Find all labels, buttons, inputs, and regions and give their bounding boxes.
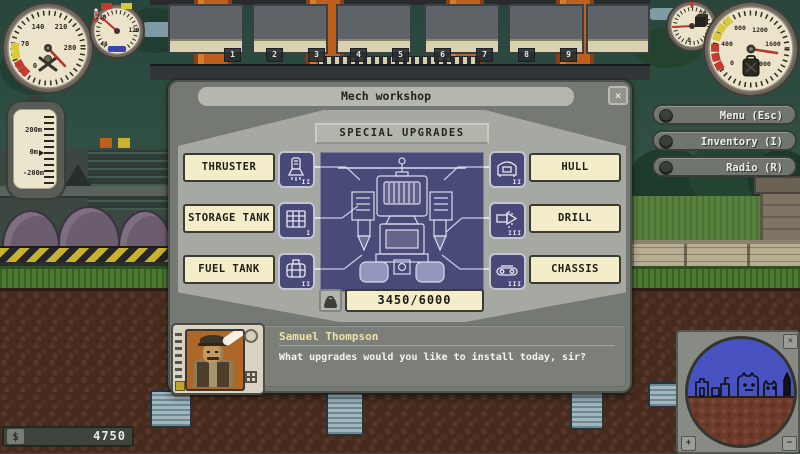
npc-name: Samuel Thompson <box>279 330 378 343</box>
close-button[interactable]: ✕ <box>608 86 628 105</box>
bay-number: 4 <box>350 48 367 62</box>
upgrade-level: III <box>508 281 522 288</box>
npc-mustache <box>207 357 219 360</box>
altimeter-tick: -200m <box>23 169 44 177</box>
fuel-gauge: 0 400 800 1200 1600 2000 <box>702 0 800 98</box>
upgrade-level: I <box>306 230 311 237</box>
tv-warning-sticker <box>175 381 185 391</box>
gauge-tick: 70 <box>21 40 29 48</box>
drill-button[interactable]: DRILL <box>529 204 621 233</box>
name-divider <box>279 345 615 346</box>
storage-tank-button[interactable]: STORAGE TANK <box>183 204 275 233</box>
button-knob <box>659 135 673 149</box>
storage-tank-icon-button[interactable]: I <box>278 202 315 239</box>
bay-number: 9 <box>560 48 577 62</box>
water-patch <box>570 390 604 430</box>
menu-button[interactable]: Menu (Esc) <box>652 104 797 125</box>
machine-dome <box>2 210 60 250</box>
bay-number: 3 <box>308 48 325 62</box>
tv-speaker-grid <box>245 371 257 383</box>
thruster-button[interactable]: THRUSTER <box>183 153 275 182</box>
gauge-tick: 0 <box>33 62 37 70</box>
gauge-tick: 800 <box>734 24 746 32</box>
red-zone-label <box>101 3 112 9</box>
factory-panel <box>424 4 500 54</box>
button-knob <box>659 161 673 175</box>
altimeter-pointer <box>39 150 44 156</box>
speed-gauge: 0 70 140 210 280 <box>2 2 94 94</box>
money-value: 4750 <box>93 429 126 443</box>
water-patch <box>326 392 364 436</box>
factory-panel <box>252 4 328 54</box>
radio-button-label: Radio (R) <box>726 162 783 174</box>
thruster-icon-button[interactable]: II <box>278 151 315 188</box>
gauge-tick: 1600 <box>765 40 781 48</box>
water-patch <box>150 390 192 428</box>
bay-number: 1 <box>224 48 241 62</box>
machine-dome <box>58 206 120 246</box>
currency-icon: $ <box>7 429 24 444</box>
minimap: ✕ + − <box>676 330 800 454</box>
gauge-tick: 120 <box>129 27 140 34</box>
weight-indicator-icon <box>319 289 342 312</box>
bay-number: 2 <box>266 48 283 62</box>
chassis-icon-button[interactable]: III <box>489 253 526 290</box>
minimap-viewport <box>685 336 797 448</box>
upgrade-level: III <box>508 230 522 237</box>
gauge-tick: 140 <box>32 23 45 31</box>
altimeter-tick: 200m <box>25 126 42 134</box>
bay-number: 6 <box>434 48 451 62</box>
bay-number: 5 <box>392 48 409 62</box>
factory-panel <box>336 4 412 54</box>
fuel-can-icon <box>743 56 759 76</box>
yellow-zone-label <box>121 3 132 9</box>
factory-structure: 1 2 3 4 5 6 7 8 9 <box>150 0 650 78</box>
storage-tank-icon <box>284 207 308 233</box>
npc-portrait-tv <box>171 323 265 395</box>
tv-knob <box>244 329 258 343</box>
brand-label <box>108 46 126 52</box>
npc-eye <box>215 351 218 353</box>
kettlebell-icon <box>321 291 340 310</box>
gauge-tick: 400 <box>721 40 733 48</box>
npc-dialogue-text: What upgrades would you like to install … <box>279 352 586 363</box>
factory-panel <box>508 4 584 54</box>
inventory-button-label: Inventory (I) <box>701 136 783 148</box>
platform-base <box>150 64 650 80</box>
mech-blueprint-panel <box>320 152 484 292</box>
temperature-gauge: 220 120 40 <box>88 2 146 60</box>
hull-icon-button[interactable]: II <box>489 151 526 188</box>
mech-workshop-dialog: Mech workshop ✕ SPECIAL UPGRADES <box>168 80 632 393</box>
npc-face <box>203 343 223 363</box>
money-counter: $ 4750 <box>2 426 134 447</box>
portrait-screen <box>185 329 245 391</box>
hull-button[interactable]: HULL <box>529 153 621 182</box>
minimap-zoom-in-button[interactable]: + <box>681 436 696 451</box>
npc-shirt-front <box>209 362 217 387</box>
factory-panel <box>168 4 244 54</box>
game-screen: { "palette":{"cream":"#f3edca","navy":"#… <box>0 0 800 450</box>
minimap-buildings <box>690 368 794 398</box>
npc-eye <box>207 351 210 353</box>
minimap-close-button[interactable]: ✕ <box>783 334 798 349</box>
tv-control-strip <box>175 330 182 378</box>
gauge-tick: 210 <box>55 23 68 31</box>
fuel-tank-button[interactable]: FUEL TANK <box>183 255 275 284</box>
button-knob <box>659 109 673 123</box>
upgrade-level: II <box>302 281 311 288</box>
gauge-tick: 280 <box>64 44 77 52</box>
altimeter-tick: 0m <box>30 148 38 156</box>
upgrade-level: II <box>302 179 311 186</box>
minimap-zoom-out-button[interactable]: − <box>782 436 797 451</box>
dialog-title: Mech workshop <box>198 87 574 106</box>
gauge-tick: 40 <box>100 41 108 48</box>
drill-icon-button[interactable]: III <box>489 202 526 239</box>
inventory-button[interactable]: Inventory (I) <box>652 130 797 151</box>
factory-panel <box>586 4 650 54</box>
radio-button[interactable]: Radio (R) <box>652 156 797 177</box>
chassis-button[interactable]: CHASSIS <box>529 255 621 284</box>
screen-glare <box>221 329 245 347</box>
special-upgrades-header: SPECIAL UPGRADES <box>315 123 489 144</box>
menu-button-label: Menu (Esc) <box>720 110 783 122</box>
weight-total: 3450/6000 <box>345 289 484 312</box>
bay-number: 8 <box>518 48 535 62</box>
altimeter: 200m 0m -200m <box>6 100 66 200</box>
gauge-tick: 0 <box>687 37 691 44</box>
minimap-ground <box>688 396 794 447</box>
bay-number: 7 <box>476 48 493 62</box>
upgrade-level: II <box>513 179 522 186</box>
fuel-tank-icon-button[interactable]: II <box>278 253 315 290</box>
gauge-tick: 0 <box>730 59 734 67</box>
gauge-tick: 1200 <box>752 26 768 34</box>
machine-dome <box>118 210 172 250</box>
